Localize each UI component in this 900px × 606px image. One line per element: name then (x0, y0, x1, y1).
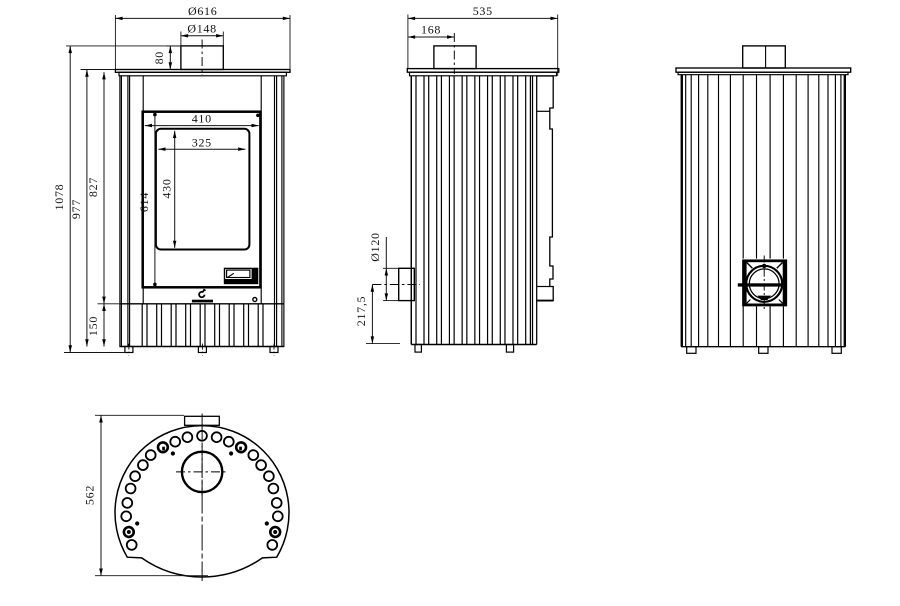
svg-text:80: 80 (152, 51, 166, 64)
svg-text:977: 977 (69, 199, 83, 219)
svg-text:150: 150 (86, 316, 100, 336)
svg-text:1078: 1078 (52, 184, 66, 211)
svg-text:827: 827 (86, 177, 100, 197)
svg-text:Ø148: Ø148 (187, 22, 216, 36)
svg-text:410: 410 (192, 112, 212, 126)
svg-text:168: 168 (421, 22, 441, 36)
svg-text:217,5: 217,5 (354, 296, 368, 327)
svg-text:Ø616: Ø616 (188, 4, 217, 18)
svg-text:535: 535 (473, 4, 493, 18)
svg-text:325: 325 (192, 135, 212, 149)
svg-text:430: 430 (160, 178, 174, 198)
svg-text:614: 614 (137, 192, 151, 212)
svg-text:Ø120: Ø120 (368, 232, 382, 261)
svg-text:562: 562 (83, 485, 97, 505)
